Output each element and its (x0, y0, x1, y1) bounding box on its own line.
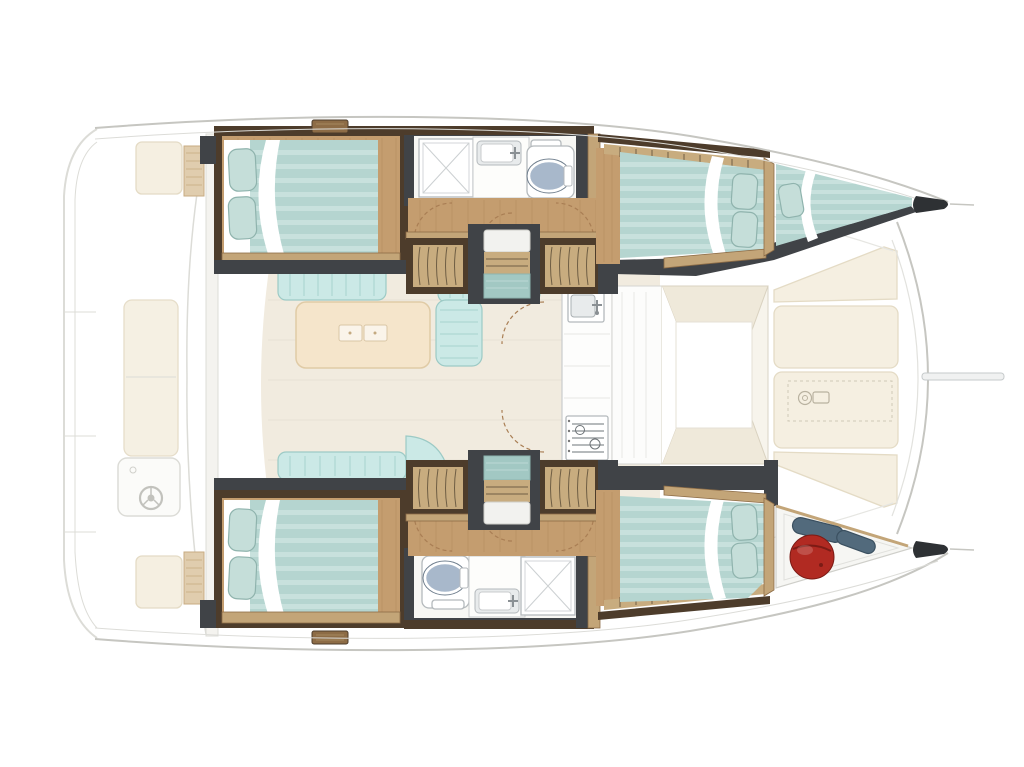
stbd-aft-cabin (200, 488, 408, 644)
lounge-cushion-3 (774, 372, 898, 448)
aft-bench-top (136, 142, 182, 194)
cockpit-table-bottom (184, 552, 204, 604)
forward-doorway (662, 286, 768, 464)
double-bed (224, 500, 378, 614)
hull-inner-wall (214, 478, 408, 490)
port-bow-tip (913, 196, 948, 213)
bowsprit (922, 373, 1004, 380)
stbd-bathroom (404, 548, 600, 629)
doorway-opening (676, 322, 752, 428)
deck-hatch (312, 120, 348, 133)
lounge-cushion-1 (774, 247, 897, 302)
pillow (228, 508, 257, 551)
toilet (527, 146, 574, 198)
aft-locker (200, 600, 216, 628)
galley (562, 286, 612, 466)
port-bathroom (404, 126, 600, 206)
forward-window-band (612, 286, 662, 464)
stbd-forward-cabin (596, 486, 770, 620)
pillow (731, 504, 758, 541)
port-aft-cabin (200, 120, 408, 266)
lounge-cushion-4 (774, 452, 897, 507)
shower (521, 557, 575, 615)
helm-station (118, 458, 180, 516)
pillow (731, 211, 758, 248)
port-stairwell (406, 224, 602, 304)
shelf (432, 600, 464, 609)
swim-step-lines (64, 312, 96, 532)
pillow (228, 148, 257, 191)
stbd-stairwell (406, 450, 602, 530)
double-bed (620, 152, 766, 258)
salon-table (296, 302, 430, 368)
stern-outline-inner (75, 142, 97, 628)
fender-red (790, 535, 834, 579)
port-bow-berth (764, 158, 912, 256)
aft-locker (200, 136, 216, 164)
double-bed (224, 140, 378, 254)
pillow (228, 556, 257, 599)
aft-deck (64, 129, 218, 638)
hull-inner-wall (214, 260, 408, 274)
floor-plan-canvas (0, 0, 1024, 767)
cabin-sill (222, 612, 400, 623)
port-forward-cabin (596, 134, 770, 268)
pillow (731, 173, 758, 210)
aft-bench-bottom (136, 556, 182, 608)
hull-inner-wall-fwd (598, 466, 770, 490)
lounge-cushion-2 (774, 306, 898, 368)
pillow (228, 196, 257, 239)
pillow (731, 542, 758, 579)
side-bench (124, 300, 178, 456)
stair-treads (484, 252, 530, 274)
vanity-sink (473, 137, 529, 198)
starboard-hull (200, 450, 912, 644)
floor-plan-page (0, 0, 1024, 767)
shower (419, 139, 473, 197)
stair-landing (484, 456, 530, 480)
stern-outline-outer (64, 129, 97, 638)
stair-treads (484, 480, 530, 502)
stair-landing (484, 274, 530, 298)
sofa-bottom-band (278, 452, 406, 480)
double-bed (620, 496, 766, 602)
galley-stove (566, 416, 608, 460)
vanity-sink (469, 556, 525, 617)
forward-cockpit (764, 214, 1004, 540)
